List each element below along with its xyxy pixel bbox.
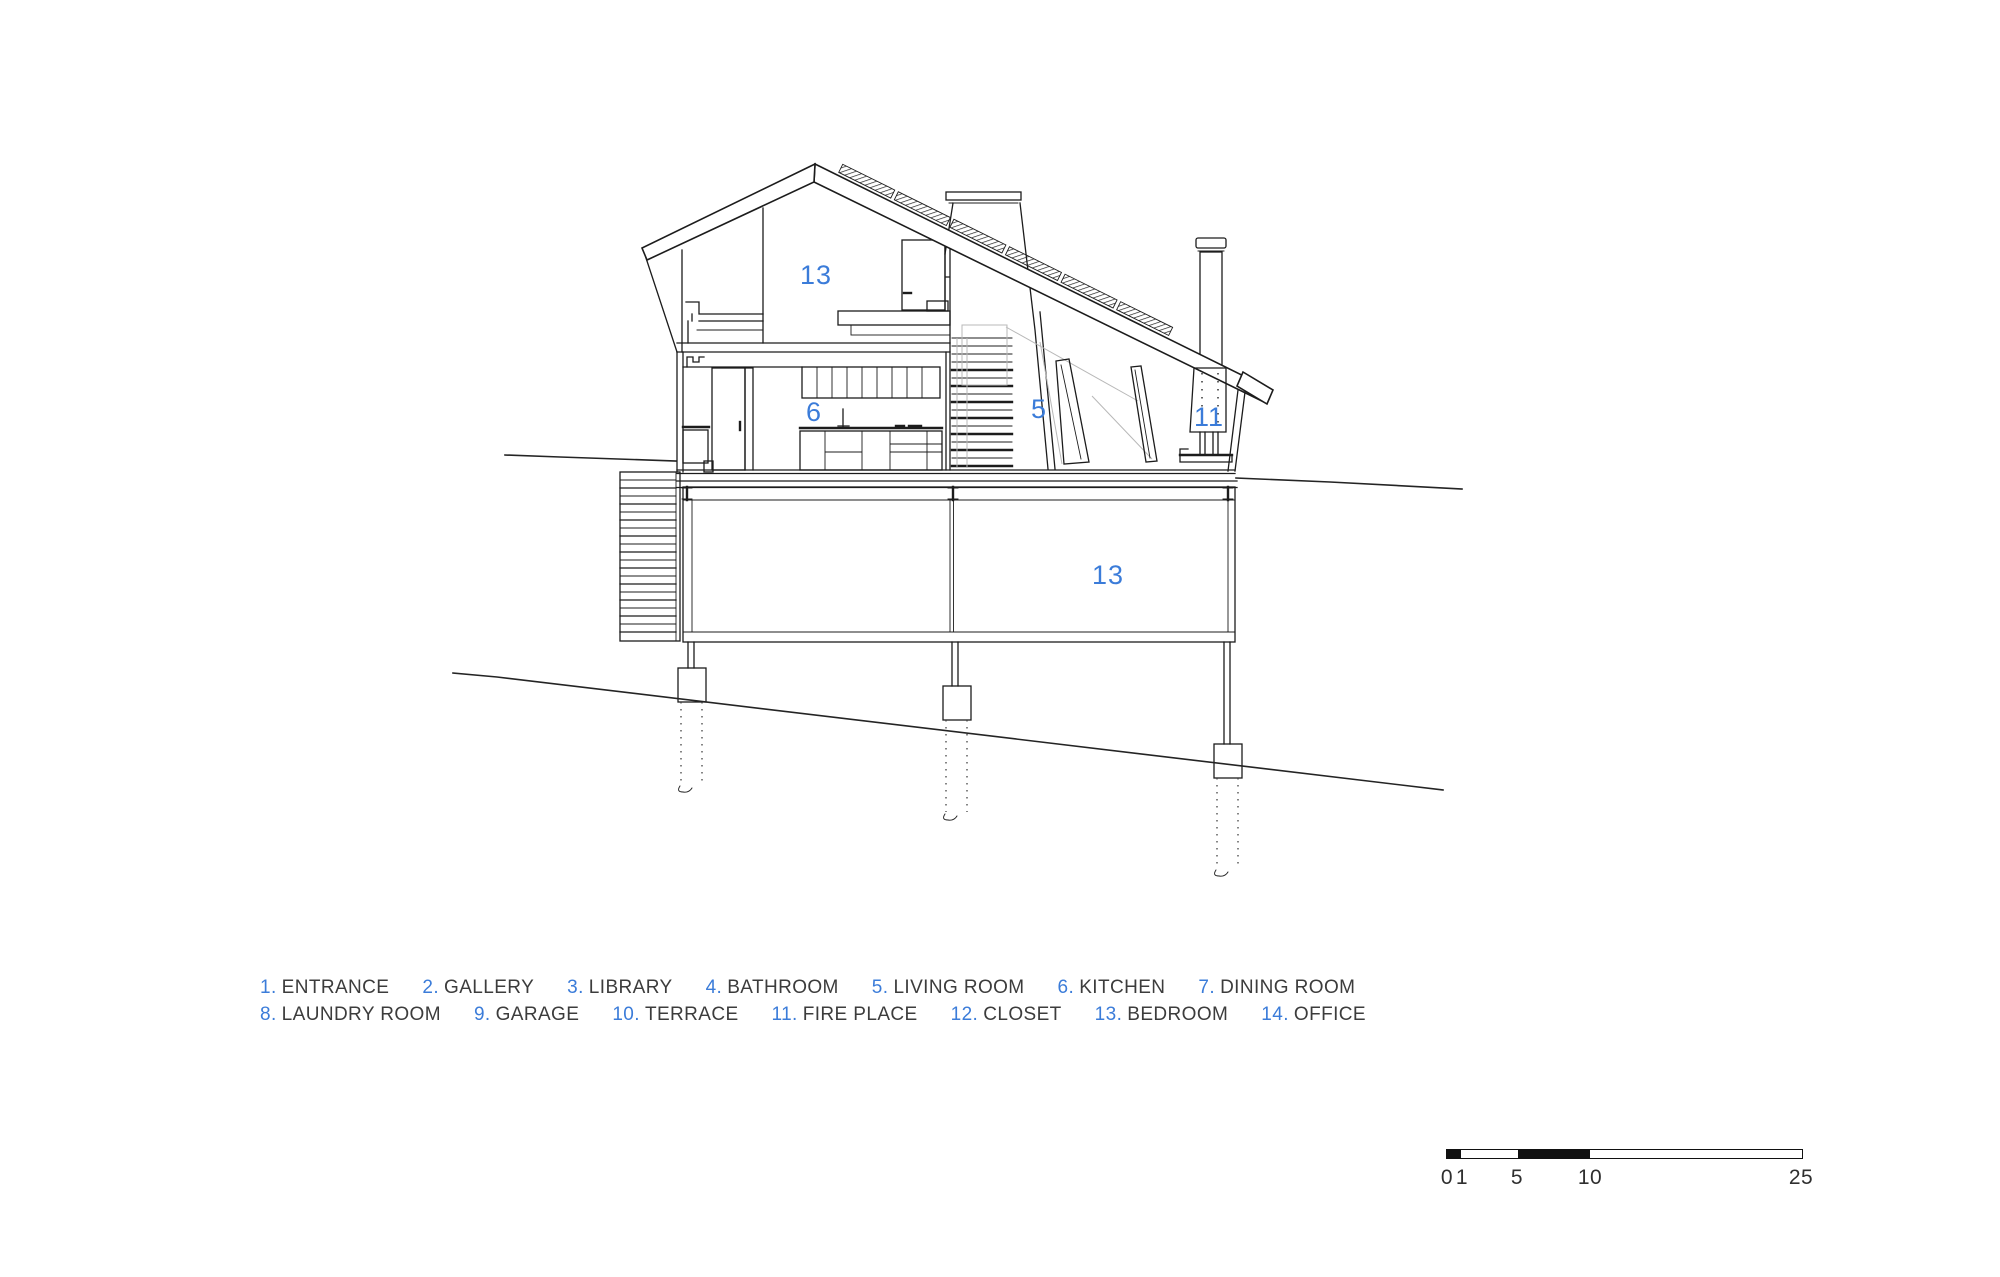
entrance-door [712, 368, 745, 470]
legend-item-laundry-room: 8.LAUNDRY ROOM [260, 1004, 441, 1026]
legend-item-terrace: 10.TERRACE [612, 1004, 738, 1026]
scale-label-10: 10 [1578, 1166, 1602, 1190]
scale-label-25: 25 [1789, 1166, 1813, 1190]
pile-foundations [678, 642, 1242, 876]
legend-item-bathroom: 4.BATHROOM [706, 977, 839, 999]
room-label-living-room: 5 [1031, 394, 1047, 424]
legend-row-2: 8.LAUNDRY ROOM 9.GARAGE 10.TERRACE 11.FI… [260, 1004, 1366, 1031]
legend: 1.ENTRANCE 2.GALLERY 3.LIBRARY 4.BATHROO… [260, 977, 1366, 1031]
solar-panels [839, 164, 1173, 335]
room-label-fireplace: 11 [1194, 402, 1224, 432]
room-label-bedroom-lower: 13 [1092, 560, 1124, 590]
ground-lines [453, 455, 1462, 790]
legend-item-library: 3.LIBRARY [567, 977, 672, 999]
stove-flue [1196, 238, 1226, 368]
lower-level [620, 472, 1242, 876]
living-room-glazing [1006, 327, 1157, 464]
legend-item-kitchen: 6.KITCHEN [1058, 977, 1166, 999]
scale-segment-0-1 [1447, 1150, 1461, 1158]
legend-item-gallery: 2.GALLERY [422, 977, 534, 999]
scale-label-1: 1 [1456, 1166, 1468, 1190]
legend-row-1: 1.ENTRANCE 2.GALLERY 3.LIBRARY 4.BATHROO… [260, 977, 1366, 1004]
scale-segment-5-10 [1518, 1150, 1590, 1158]
scale-bar [1446, 1149, 1803, 1159]
scale-label-5: 5 [1511, 1166, 1523, 1190]
room-label-bedroom-upper: 13 [800, 260, 832, 290]
main-floor [683, 325, 1157, 472]
louver-screen [620, 472, 680, 641]
legend-item-garage: 9.GARAGE [474, 1004, 579, 1026]
house-section-drawing: 13 6 5 11 13 [0, 0, 2000, 1277]
room-label-kitchen: 6 [806, 397, 822, 427]
legend-item-fire-place: 11.FIRE PLACE [772, 1004, 918, 1026]
legend-item-entrance: 1.ENTRANCE [260, 977, 389, 999]
legend-item-dining-room: 7.DINING ROOM [1198, 977, 1355, 999]
stair-screen [946, 325, 1012, 470]
legend-item-closet: 12.CLOSET [951, 1004, 1062, 1026]
bathroom-door [902, 240, 945, 310]
dresser [838, 311, 950, 325]
legend-item-living-room: 5.LIVING ROOM [872, 977, 1025, 999]
legend-item-office: 14.OFFICE [1261, 1004, 1366, 1026]
eave-fascia [1237, 372, 1273, 404]
page: 13 6 5 11 13 1.ENTRANCE 2.GALLERY 3.LIBR… [0, 0, 2000, 1277]
scale-label-0: 0 [1441, 1166, 1453, 1190]
legend-item-bedroom: 13.BEDROOM [1095, 1004, 1229, 1026]
